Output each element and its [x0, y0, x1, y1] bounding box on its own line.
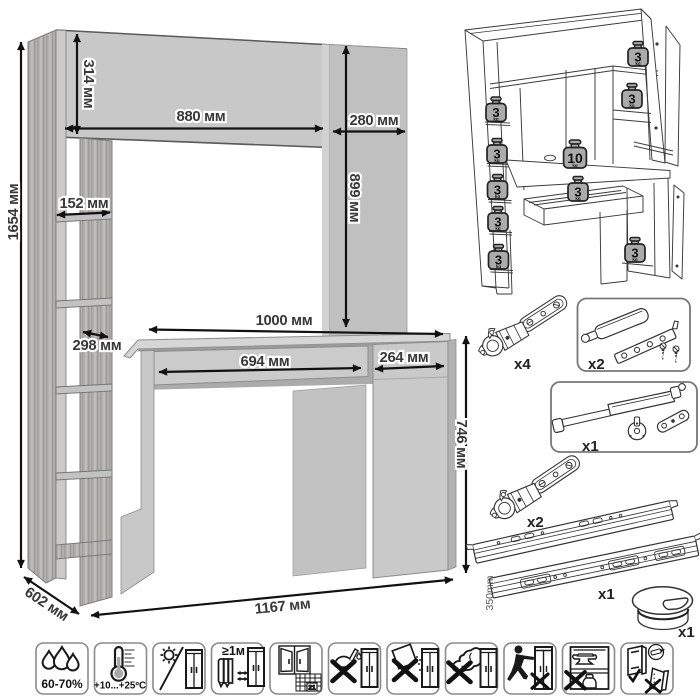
- svg-text:x1: x1: [598, 586, 615, 603]
- svg-text:≥1м: ≥1м: [222, 644, 245, 658]
- svg-text:694 мм: 694 мм: [241, 354, 290, 370]
- svg-text:1654 мм: 1654 мм: [6, 184, 22, 241]
- svg-text:1000 мм: 1000 мм: [256, 313, 313, 329]
- svg-text:x4: x4: [514, 356, 531, 373]
- svg-text:60-70%: 60-70%: [41, 677, 83, 691]
- svg-text:314 мм: 314 мм: [80, 60, 96, 109]
- svg-text:899 мм: 899 мм: [346, 174, 362, 223]
- svg-text:152 мм: 152 мм: [60, 196, 109, 212]
- svg-text:x2: x2: [527, 514, 544, 531]
- svg-text:x1: x1: [678, 624, 695, 641]
- svg-text:280 мм: 280 мм: [350, 113, 399, 129]
- svg-text:x1: x1: [582, 438, 599, 455]
- svg-text:+10...+25ºC: +10...+25ºC: [94, 681, 146, 692]
- svg-text:264 мм: 264 мм: [380, 350, 429, 366]
- svg-text:350mm: 350mm: [484, 575, 496, 610]
- svg-text:746 мм: 746 мм: [453, 420, 469, 469]
- svg-text:298 мм: 298 мм: [73, 338, 122, 354]
- svg-text:880 мм: 880 мм: [177, 109, 226, 125]
- svg-text:x2: x2: [588, 356, 605, 373]
- svg-text:21: 21: [308, 685, 316, 692]
